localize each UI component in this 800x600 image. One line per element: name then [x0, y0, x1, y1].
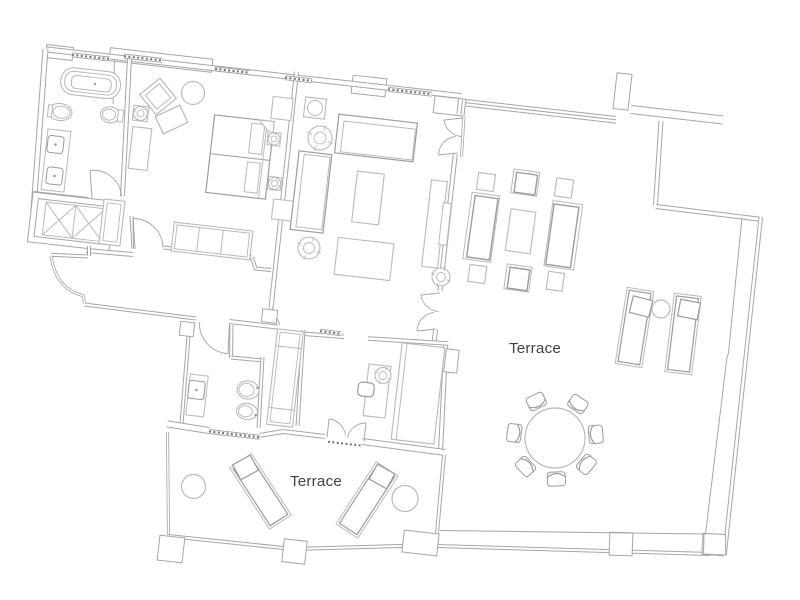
- svg-text:Terrace: Terrace: [509, 340, 561, 357]
- svg-text:Terrace: Terrace: [290, 473, 342, 490]
